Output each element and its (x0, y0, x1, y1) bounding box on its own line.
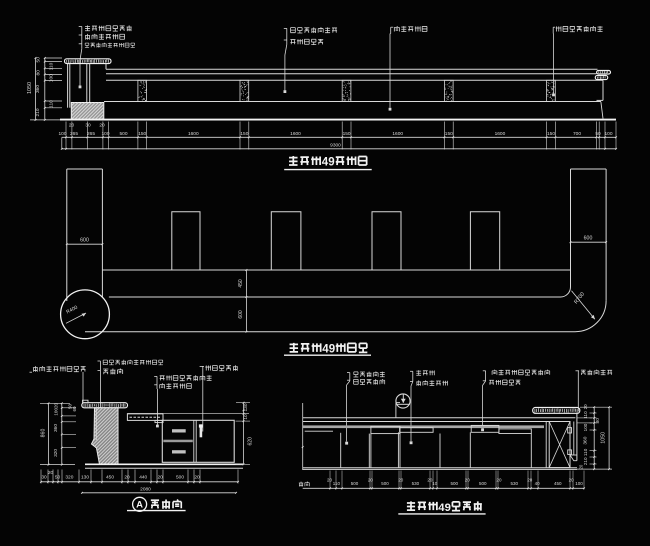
svg-text:450: 450 (238, 279, 244, 288)
svg-text:500: 500 (351, 481, 359, 486)
svg-text:49: 49 (322, 157, 335, 169)
svg-text:100: 100 (604, 131, 612, 137)
svg-text:100: 100 (58, 131, 66, 137)
svg-text:50: 50 (595, 131, 601, 137)
svg-text:210: 210 (35, 108, 41, 116)
svg-text:500: 500 (381, 481, 389, 486)
svg-text:110: 110 (333, 481, 341, 486)
svg-text:20: 20 (158, 475, 164, 481)
svg-text:150: 150 (138, 131, 146, 137)
svg-text:130: 130 (243, 403, 249, 411)
svg-text:600: 600 (80, 238, 89, 244)
svg-text:20: 20 (54, 403, 59, 409)
svg-text:20: 20 (48, 470, 54, 476)
svg-text:110: 110 (49, 100, 55, 108)
svg-text:20: 20 (579, 464, 584, 469)
svg-text:530: 530 (511, 481, 519, 486)
svg-text:150: 150 (445, 131, 453, 137)
svg-text:130: 130 (81, 475, 89, 481)
svg-text:1600: 1600 (392, 131, 403, 137)
svg-text:20: 20 (465, 478, 471, 483)
svg-text:150: 150 (343, 131, 351, 137)
svg-text:150: 150 (240, 131, 248, 137)
svg-text:20: 20 (368, 478, 374, 483)
svg-text:20: 20 (569, 478, 575, 483)
svg-text:2080: 2080 (140, 486, 151, 492)
svg-text:20: 20 (583, 404, 588, 410)
svg-text:1050: 1050 (27, 82, 33, 94)
svg-text:700: 700 (573, 131, 581, 137)
svg-text:500: 500 (176, 475, 184, 481)
svg-text:265: 265 (87, 131, 95, 137)
svg-text:110: 110 (583, 411, 588, 419)
svg-text:500: 500 (119, 131, 127, 137)
svg-text:450: 450 (554, 481, 562, 486)
svg-text:100: 100 (54, 408, 59, 416)
svg-text:10: 10 (432, 481, 438, 486)
svg-text:110: 110 (49, 62, 55, 70)
svg-text:20: 20 (398, 478, 404, 483)
svg-text:100: 100 (583, 423, 588, 431)
svg-text:80: 80 (36, 70, 42, 76)
svg-text:530: 530 (412, 481, 420, 486)
svg-text:20: 20 (124, 475, 130, 481)
svg-text:80: 80 (595, 418, 601, 424)
svg-text:360: 360 (35, 85, 41, 93)
svg-text:210: 210 (583, 457, 588, 465)
svg-text:20: 20 (527, 478, 533, 483)
svg-text:100: 100 (49, 74, 55, 82)
svg-text:40: 40 (535, 481, 541, 486)
svg-text:20: 20 (327, 478, 333, 483)
svg-text:30: 30 (85, 123, 91, 129)
svg-text:20: 20 (69, 123, 75, 129)
svg-text:265: 265 (70, 131, 78, 137)
svg-text:360: 360 (583, 436, 589, 444)
svg-text:1600: 1600 (188, 131, 199, 137)
svg-text:320: 320 (53, 449, 59, 457)
svg-text:A: A (136, 500, 143, 511)
svg-text:20: 20 (496, 478, 502, 483)
svg-text:10: 10 (243, 414, 249, 420)
svg-text:60: 60 (72, 406, 77, 412)
svg-text:860: 860 (40, 429, 46, 438)
svg-text:320: 320 (65, 475, 73, 481)
svg-text:600: 600 (238, 310, 244, 319)
svg-text:500: 500 (450, 481, 458, 486)
svg-text:360: 360 (53, 424, 59, 432)
svg-text:110: 110 (583, 448, 588, 456)
svg-text:1050: 1050 (601, 432, 607, 444)
svg-text:450: 450 (106, 475, 114, 481)
svg-text:50: 50 (36, 57, 42, 63)
svg-text:1600: 1600 (495, 131, 506, 137)
svg-text:150: 150 (547, 131, 555, 137)
svg-text:20: 20 (194, 475, 200, 481)
svg-text:49: 49 (322, 343, 335, 355)
svg-text:440: 440 (139, 475, 147, 481)
svg-text:50: 50 (55, 475, 61, 481)
svg-text:600: 600 (584, 236, 593, 242)
svg-text:20: 20 (99, 123, 105, 129)
svg-text:1600: 1600 (290, 131, 301, 137)
svg-text:100: 100 (101, 131, 109, 137)
svg-text:620: 620 (247, 437, 253, 446)
svg-text:500: 500 (479, 481, 487, 486)
svg-text:30: 30 (41, 475, 47, 481)
svg-text:100: 100 (575, 481, 583, 486)
svg-text:49: 49 (438, 502, 451, 514)
svg-text:9300: 9300 (330, 143, 341, 149)
